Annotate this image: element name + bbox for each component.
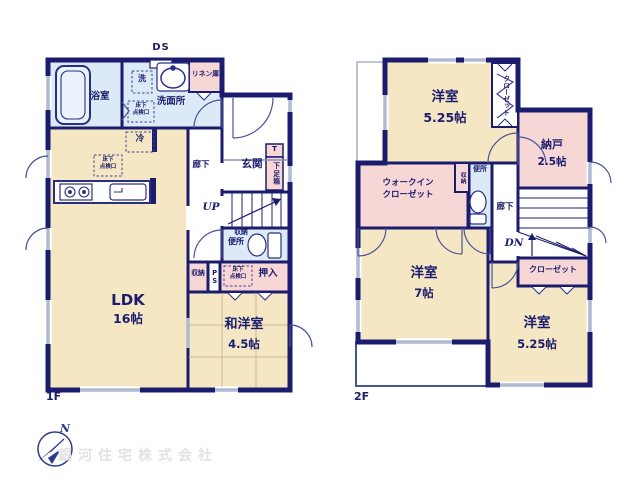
bedroom2-label: 洋室 [402, 266, 446, 281]
toilet-bowl-2f [470, 191, 486, 213]
ldk-label: LDK [88, 292, 168, 308]
bedroom1-size-label: 5.25帖 [413, 111, 477, 125]
room-bedroom2 [358, 228, 488, 342]
oshiire-label: 押入 [248, 269, 288, 279]
hatch-washroom-label-2: 点検口 [128, 111, 154, 117]
floor1-label: 1F [46, 391, 76, 403]
bedroom3-label: 洋室 [514, 316, 560, 331]
bedroom2-size-label: 7帖 [406, 287, 442, 299]
ds-label: DS [146, 43, 176, 54]
shoe-t-label: T [267, 146, 282, 154]
ldk-size-label: 16帖 [88, 312, 168, 326]
toilet-bowl-1f [248, 234, 266, 256]
wic-label-2: クローゼット [368, 191, 448, 200]
floor-plan-2f [356, 60, 611, 386]
nando-size-label: 2.5帖 [530, 157, 574, 168]
floorplan-drawing [0, 0, 640, 480]
bath-label: 浴室 [82, 92, 118, 102]
storage-1f-label: 収納 [188, 270, 208, 277]
ps-label: PS [207, 264, 221, 290]
washitsu-size-label: 4.5帖 [212, 338, 276, 350]
toilet-1f-label: 便所 [222, 238, 250, 247]
toilet-2f-label: 便所 [468, 166, 492, 174]
floor2-label: 2F [354, 391, 384, 403]
floorplan-canvas: DS 浴室 洗 リネン庫 洗面所 床下 点検口 冷 床下 点検口 廊下 玄関 T… [0, 0, 640, 480]
compass-n-label: N [58, 423, 72, 435]
storage-2f-label: 収納 [455, 164, 469, 191]
closet-top-label: クローゼット [496, 66, 514, 124]
storage-wc-label: 収納 [228, 229, 254, 236]
toilet-tank-1f [268, 233, 281, 258]
shoe-box-label: 下足箱 [267, 159, 283, 189]
washitsu-label: 和洋室 [208, 318, 280, 332]
corridor-1f-label: 廊下 [188, 161, 214, 170]
bedroom1-label: 洋室 [415, 90, 475, 105]
company-watermark: 銀河住宅株式会社 [58, 449, 298, 464]
wic-label-1: ウォークイン [368, 179, 448, 188]
up-label: UP [198, 202, 224, 213]
toilet-tank-2f [470, 214, 486, 224]
room-corridor-1f [188, 128, 222, 262]
fridge-label: 冷 [127, 135, 153, 144]
corridor-2f-label: 廊下 [492, 203, 518, 212]
dn-label: DN [500, 238, 528, 249]
washer-label: 洗 [133, 75, 151, 84]
hatch-kitchen-label-2: 点検口 [94, 165, 122, 171]
linen-label: リネン庫 [189, 71, 222, 78]
washroom-label: 洗面所 [150, 97, 192, 107]
balcony [356, 342, 488, 386]
bedroom3-size-label: 5.25帖 [508, 338, 566, 350]
closet-br-label: クローゼット [520, 266, 586, 275]
nando-label: 納戸 [530, 139, 574, 151]
